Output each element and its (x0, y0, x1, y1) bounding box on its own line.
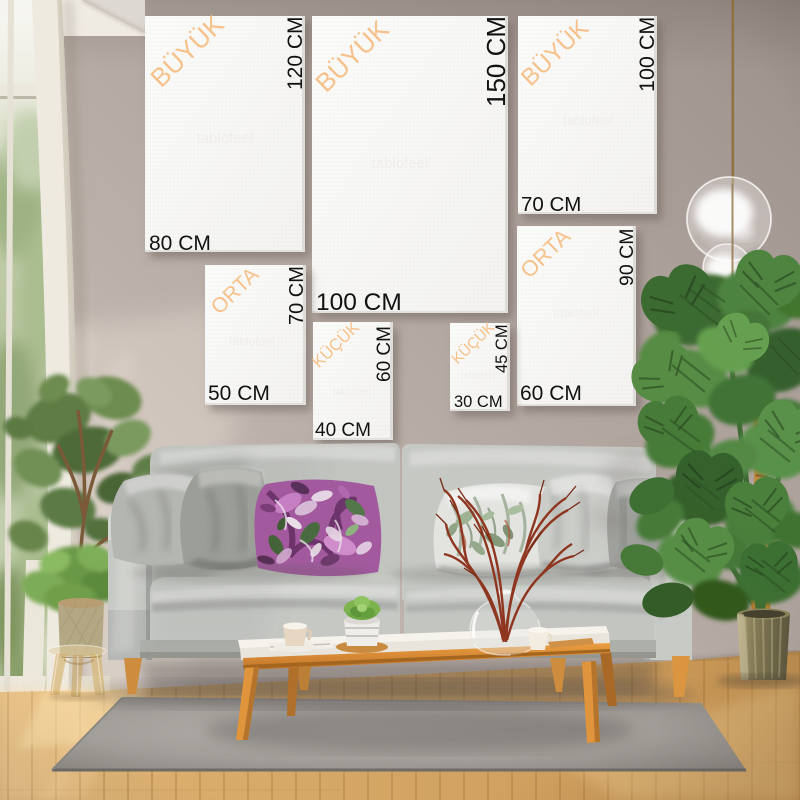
svg-text:150 CM: 150 CM (481, 16, 511, 107)
svg-text:tablofeel: tablofeel (553, 306, 598, 320)
svg-text:tablofeel: tablofeel (461, 370, 495, 380)
svg-text:tablofeel: tablofeel (372, 155, 429, 172)
svg-text:60 CM: 60 CM (520, 382, 582, 405)
svg-text:tablofeel: tablofeel (197, 130, 254, 147)
svg-text:90 CM: 90 CM (616, 229, 638, 286)
svg-text:60 CM: 60 CM (374, 326, 395, 382)
svg-text:70 CM: 70 CM (521, 193, 581, 216)
svg-text:tablofeel: tablofeel (563, 113, 612, 128)
svg-text:100 CM: 100 CM (635, 17, 659, 92)
svg-text:120 CM: 120 CM (284, 16, 307, 90)
svg-text:45 CM: 45 CM (493, 324, 511, 373)
svg-text:tablofeel: tablofeel (229, 334, 274, 348)
svg-text:80 CM: 80 CM (149, 232, 211, 255)
svg-text:50 CM: 50 CM (208, 382, 270, 405)
svg-text:tablofeel: tablofeel (333, 387, 371, 398)
svg-text:40 CM: 40 CM (315, 420, 371, 441)
svg-text:30 CM: 30 CM (454, 393, 503, 411)
svg-text:70 CM: 70 CM (286, 266, 308, 325)
svg-text:100 CM: 100 CM (316, 289, 402, 316)
